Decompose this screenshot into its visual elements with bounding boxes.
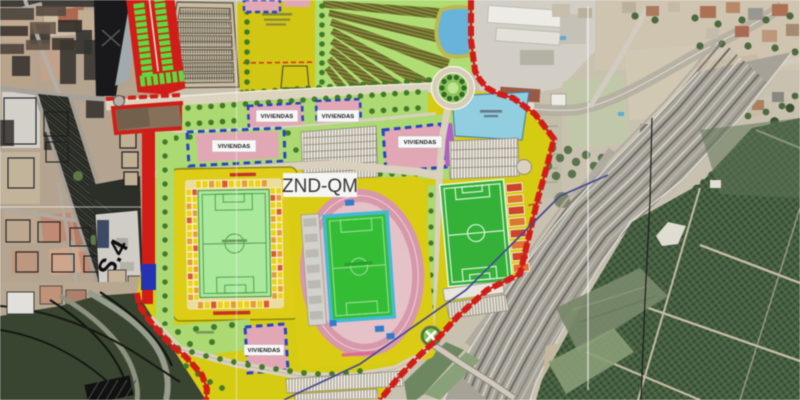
svg-text:ZND-QM: ZND-QM: [282, 176, 358, 197]
svg-text:VIVIENDAS: VIVIENDAS: [218, 144, 251, 150]
svg-text:VIVIENDAS: VIVIENDAS: [404, 140, 437, 146]
svg-text:VIVIENDAS: VIVIENDAS: [261, 114, 294, 120]
svg-text:VIVIENDAS: VIVIENDAS: [322, 114, 355, 120]
svg-text:VIVIENDAS: VIVIENDAS: [248, 348, 281, 354]
